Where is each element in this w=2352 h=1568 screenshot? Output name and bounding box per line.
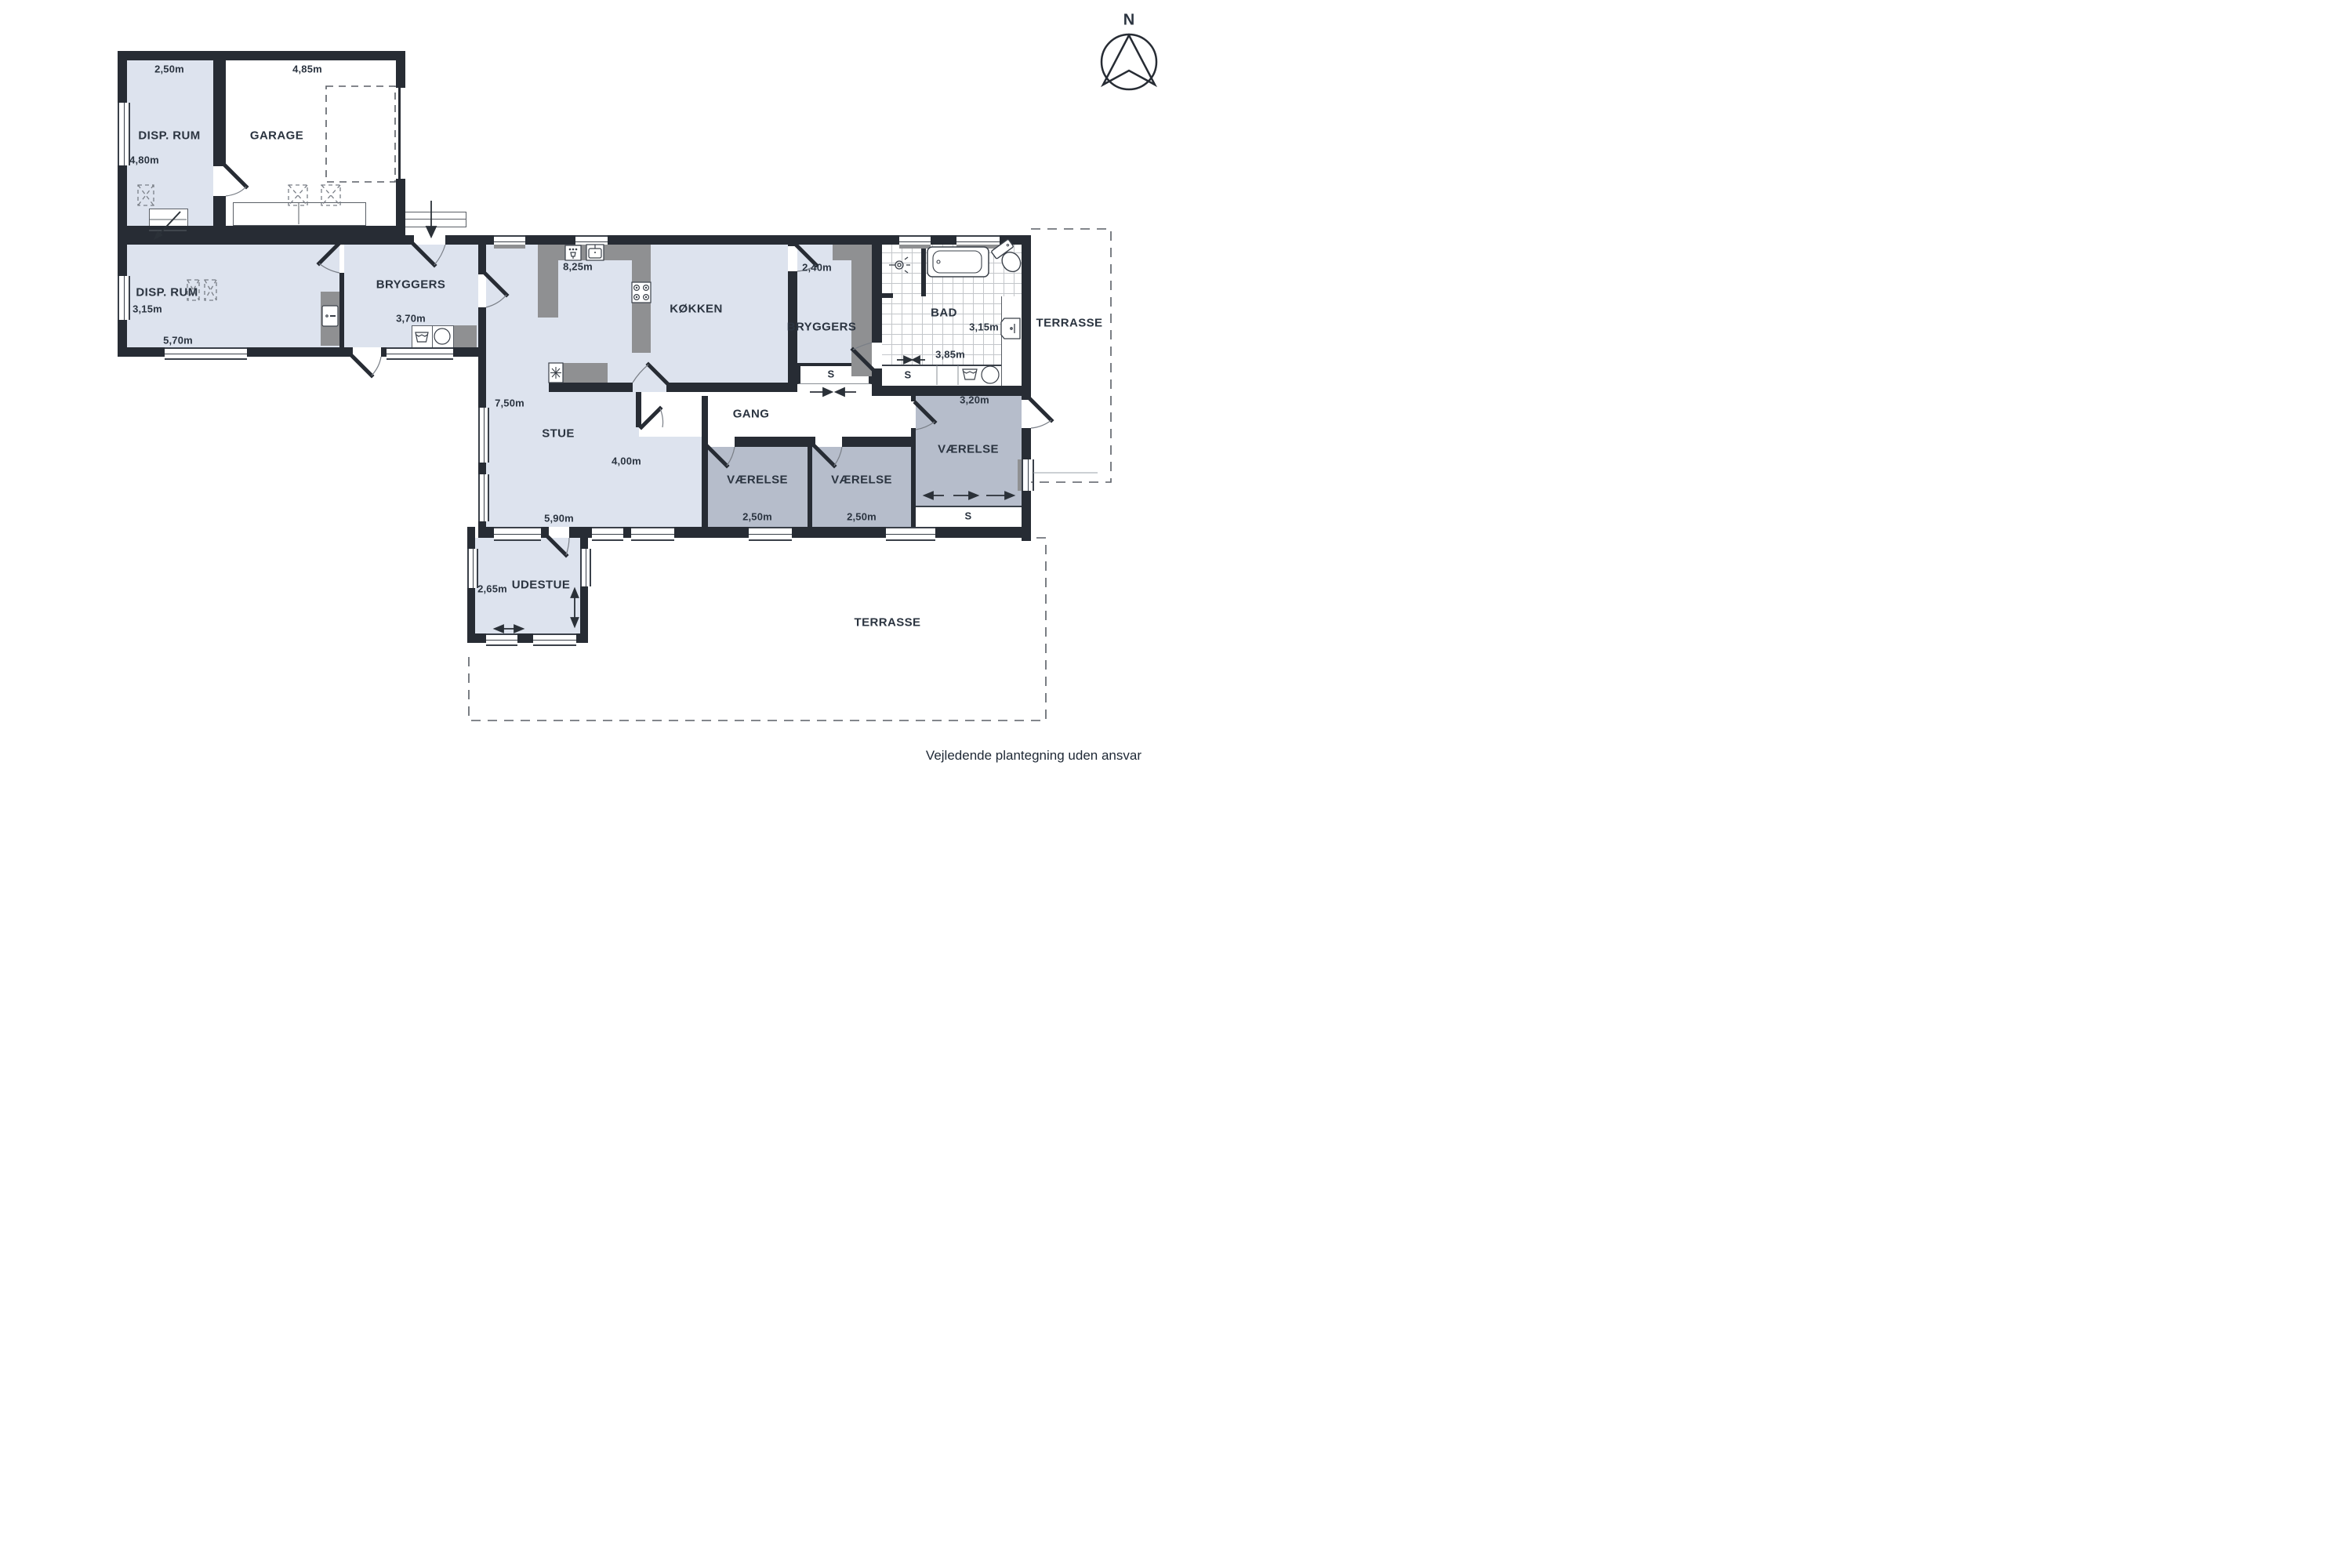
skylight-x-box xyxy=(138,185,340,300)
dim-bryggers-west-width: 3,70m xyxy=(396,313,426,325)
dim-udestue-depth: 2,65m xyxy=(477,583,507,595)
dryer-icon xyxy=(434,328,450,344)
dim-kokken-width: 8,25m xyxy=(563,261,593,273)
room-label-bryggers-west: BRYGGERS xyxy=(376,278,446,292)
bad-laundry-icons xyxy=(937,365,999,385)
room-label-disp-rum-garage: DISP. RUM xyxy=(138,129,200,143)
dim-stue-depth: 7,50m xyxy=(495,397,524,409)
udestue-sliding-arrows xyxy=(495,589,579,633)
disclaimer-text: Vejledende plantegning uden ansvar xyxy=(926,748,1142,764)
room-label-gang: GANG xyxy=(733,408,770,421)
entry-arrow xyxy=(426,201,436,237)
dishwasher-icon xyxy=(565,245,581,260)
dim-disp-rum-main-depth: 3,15m xyxy=(132,303,162,315)
room-label-bryggers-east: BRYGGERS xyxy=(787,321,857,334)
compass-north-label: N xyxy=(1123,12,1134,30)
wardrobe-arrows xyxy=(924,492,1014,499)
fridge-icon xyxy=(549,363,563,383)
door-swing-arcs xyxy=(226,187,1051,555)
room-label-vaerelse-1: VÆRELSE xyxy=(727,474,788,487)
toilet-icon xyxy=(991,239,1026,276)
terrasse-south-outline xyxy=(469,538,1046,720)
room-label-terrasse-south: TERRASSE xyxy=(855,616,921,630)
floor-plan: DISP. RUM 2,50m 4,80m GARAGE 4,85m DISP.… xyxy=(0,0,1176,784)
washer-icon xyxy=(416,332,428,342)
dim-vaerelse-3-width: 3,20m xyxy=(960,394,989,406)
bathtub-icon xyxy=(927,247,989,277)
room-label-garage: GARAGE xyxy=(250,129,303,143)
room-label-vaerelse-3: VÆRELSE xyxy=(938,443,999,456)
room-label-kokken: KØKKEN xyxy=(670,303,722,316)
bathroom-sink-icon xyxy=(1001,318,1020,339)
room-label-udestue: UDESTUE xyxy=(512,579,570,592)
dim-bad-depth: 3,15m xyxy=(969,321,999,333)
dim-stue-width: 5,90m xyxy=(544,513,574,524)
closet-label-gang: S xyxy=(827,368,834,380)
terrasse-east-outline xyxy=(1031,229,1111,482)
dim-disp-rum-garage-width: 2,50m xyxy=(154,64,184,75)
dim-vaerelse-2-width: 2,50m xyxy=(847,511,877,523)
room-label-terrasse-east: TERRASSE xyxy=(1036,317,1103,330)
dim-bad-width: 3,85m xyxy=(935,349,965,361)
dim-vaerelse-1-width: 2,50m xyxy=(742,511,772,523)
tech-door-icon xyxy=(322,306,338,326)
plan-symbols-overlay xyxy=(0,0,1176,784)
compass-north-icon xyxy=(1102,34,1156,89)
room-label-bad: BAD xyxy=(931,307,957,320)
dim-disp-rum-main-width: 5,70m xyxy=(163,335,193,347)
shower-head-icon xyxy=(889,257,910,273)
dim-garage-width: 4,85m xyxy=(292,64,322,75)
closet-label-vaerelse: S xyxy=(964,510,971,522)
stove-icon xyxy=(632,282,651,303)
room-label-stue: STUE xyxy=(542,427,575,441)
dim-bryggers-east-width: 2,40m xyxy=(802,262,832,274)
dim-stue-east-width: 4,00m xyxy=(612,456,641,467)
dim-disp-rum-garage-depth: 4,80m xyxy=(129,154,159,166)
stairs-icon xyxy=(149,212,187,240)
room-label-disp-rum-main: DISP. RUM xyxy=(136,286,198,299)
room-label-vaerelse-2: VÆRELSE xyxy=(831,474,892,487)
kitchen-sink-icon xyxy=(586,245,604,260)
garage-door-dashed-zone xyxy=(326,86,395,182)
closet-label-bad: S xyxy=(904,369,911,381)
